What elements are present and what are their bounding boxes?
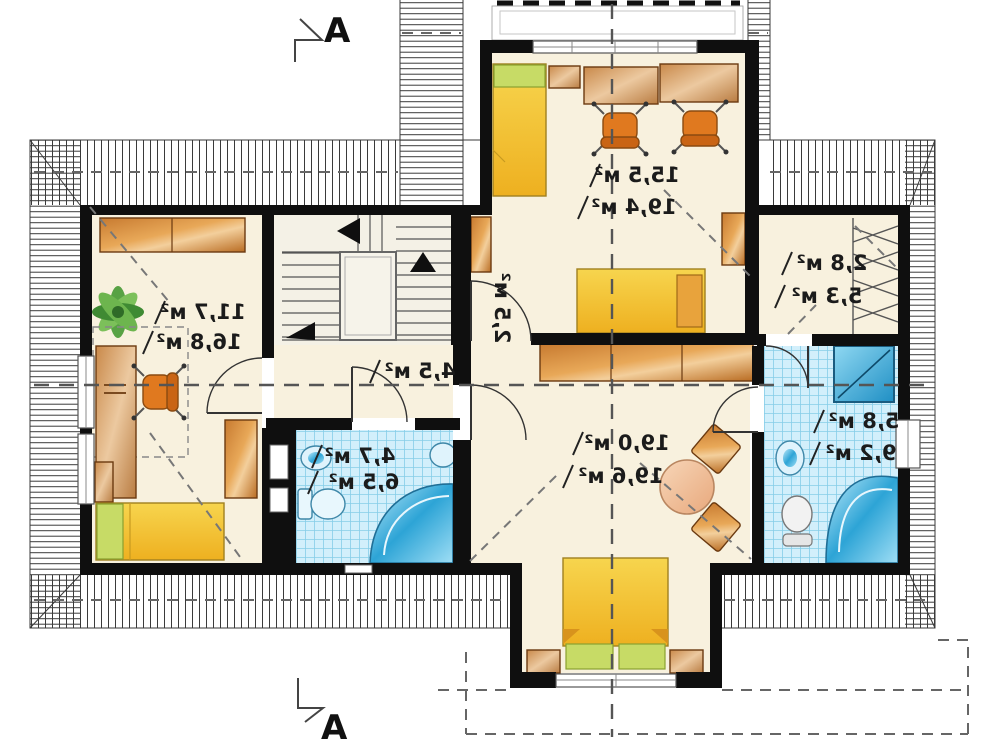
desk-1 (584, 67, 658, 104)
wall-dormer-top-b (697, 40, 755, 53)
nightstand-left (527, 650, 560, 673)
bath-small-vent (345, 565, 372, 573)
top-room-bed-2-pillow (677, 275, 702, 327)
desk-2 (660, 64, 738, 102)
top-room-wardrobe-left (471, 217, 491, 272)
master-room-area-upper: 19,0 м² (584, 431, 670, 455)
wall-left-room-a (262, 215, 274, 358)
stairwell-void (340, 252, 396, 340)
left-room-bed-pillow (97, 504, 123, 559)
wall-bay-bottom-b (676, 672, 722, 688)
wall-outer-right (898, 205, 910, 575)
wall-bath-small-top-b (415, 418, 460, 430)
section-letter-top: A (324, 11, 351, 51)
section-mark-bottom-symbol (298, 678, 323, 722)
wall-dormer-top-a (480, 40, 533, 53)
wall-slot-b (270, 488, 288, 512)
nightstand-right (670, 650, 703, 673)
left-room-area-upper: 11,7 м² (160, 300, 246, 324)
top-room-area-upper: 15,5 м² (594, 163, 680, 187)
top-room-nightstand (549, 66, 580, 88)
dormer-roof-left (400, 0, 463, 205)
section-mark-top-symbol (295, 19, 322, 62)
master-room-area-lower: 19,6 м² (578, 464, 664, 488)
master-bed-pillow-1 (566, 644, 613, 669)
left-room-side-cabinet (225, 420, 257, 498)
stairs-area: 2,5 м² (490, 273, 514, 344)
wall-top-left-run (80, 205, 492, 215)
wall-bottom-right-run (710, 563, 910, 575)
hall-area: 4,5 м² (385, 359, 456, 383)
wall-slot-a (270, 445, 288, 479)
roof-band-bottom-left (30, 575, 510, 628)
wall-dormer-left (480, 40, 492, 215)
wall-bath-small-top-a (266, 418, 352, 430)
wall-bath-large-b (752, 432, 764, 563)
plant (92, 286, 144, 338)
bath-small-toilet-tank (298, 489, 312, 519)
wall-master-left-b (453, 440, 471, 563)
wall-stairs-right (451, 215, 471, 345)
label-stairs: 2,5 м² (490, 273, 514, 344)
section-letter-bottom: A (321, 708, 348, 741)
floor-plan: 15,5 м² 19,4 м² 11,7 м² 16,8 м² 4,5 м² 2… (0, 0, 1000, 741)
roof-band-bottom-right (722, 575, 935, 628)
top-room-bed-pillow (494, 65, 545, 87)
wall-dormer-closet (745, 40, 759, 345)
bath-large-area-lower: 9,2 м² (826, 441, 897, 465)
wall-top-room-bottom (531, 333, 757, 345)
left-room-area-lower: 16,8 м² (156, 330, 242, 354)
closet-area-lower: 5,3 м² (792, 284, 863, 308)
bath-large-area-upper: 5,8 м² (829, 409, 900, 433)
top-room-area-lower: 19,4 м² (591, 195, 677, 219)
wall-closet-stub (757, 334, 766, 346)
master-bed (563, 558, 668, 646)
bath-small-sink-2 (430, 443, 456, 467)
wall-closet-bottom (812, 334, 910, 346)
dormer-front (492, 3, 743, 40)
wall-bottom-left-run (80, 563, 522, 575)
bath-small-area-lower: 6,5 м² (329, 470, 400, 494)
master-bed-pillow-2 (619, 644, 665, 669)
wall-top-right-run (745, 205, 910, 215)
top-room-wardrobe-right (722, 213, 745, 265)
wall-bath-large-a (752, 346, 764, 385)
master-wardrobe (540, 344, 753, 381)
wall-bay-right (710, 563, 722, 676)
left-room-small-cabinet (95, 462, 113, 502)
bath-large-toilet (782, 496, 812, 532)
wall-bay-bottom-a (510, 672, 556, 688)
floor-plan-drawing: 15,5 м² 19,4 м² 11,7 м² 16,8 м² 4,5 м² 2… (0, 0, 1000, 741)
bath-small-area-upper: 4,7 м² (325, 444, 396, 468)
bath-large-toilet-base (783, 534, 812, 546)
wall-bay-left (510, 563, 522, 676)
closet-area-upper: 2,8 м² (797, 251, 868, 275)
bath-large-sink-bowl (783, 449, 797, 467)
